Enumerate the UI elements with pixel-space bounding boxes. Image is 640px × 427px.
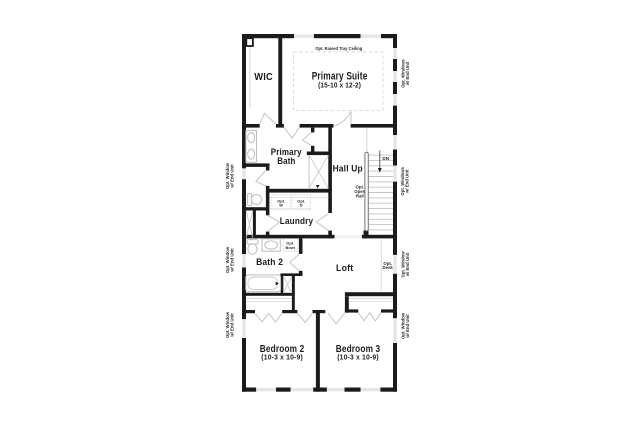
- svg-text:Opt. Windoww/ End Unit: Opt. Windoww/ End Unit: [400, 312, 410, 339]
- svg-text:Opt. Windoww/ End Unit: Opt. Windoww/ End Unit: [225, 311, 235, 338]
- svg-text:Hall Up: Hall Up: [333, 164, 363, 174]
- svg-text:Laundry: Laundry: [280, 215, 314, 226]
- svg-text:Rail: Rail: [356, 193, 364, 198]
- svg-text:Bedroom 3: Bedroom 3: [336, 344, 381, 355]
- svg-text:Opt. Windoww/ End Unit: Opt. Windoww/ End Unit: [225, 162, 235, 189]
- svg-text:Bath 2: Bath 2: [256, 256, 283, 267]
- svg-text:Opt. Windowsw/ End Unit: Opt. Windowsw/ End Unit: [400, 59, 410, 88]
- svg-text:Loft: Loft: [336, 263, 354, 274]
- svg-text:Opt. Windoww/ End Unit: Opt. Windoww/ End Unit: [400, 251, 410, 278]
- svg-text:Bowl: Bowl: [286, 245, 295, 250]
- svg-text:W: W: [279, 203, 283, 208]
- svg-text:Bath: Bath: [277, 156, 296, 166]
- svg-text:(10-3 x 10-9): (10-3 x 10-9): [261, 355, 303, 362]
- svg-text:Opt. Raised Tray Ceiling: Opt. Raised Tray Ceiling: [315, 46, 362, 51]
- svg-text:(10-3 x 10-9): (10-3 x 10-9): [337, 355, 379, 362]
- svg-text:D: D: [300, 203, 303, 208]
- svg-text:Opt. Windowsw/ End Unit: Opt. Windowsw/ End Unit: [400, 166, 410, 195]
- svg-text:Desk: Desk: [383, 265, 394, 270]
- svg-text:WIC: WIC: [254, 71, 273, 83]
- svg-text:Opt. Windoww/ End Unit: Opt. Windoww/ End Unit: [225, 246, 235, 273]
- svg-text:(15-10 x 12-2): (15-10 x 12-2): [318, 80, 361, 89]
- svg-text:Bedroom 2: Bedroom 2: [260, 344, 305, 355]
- svg-text:DN: DN: [382, 156, 389, 161]
